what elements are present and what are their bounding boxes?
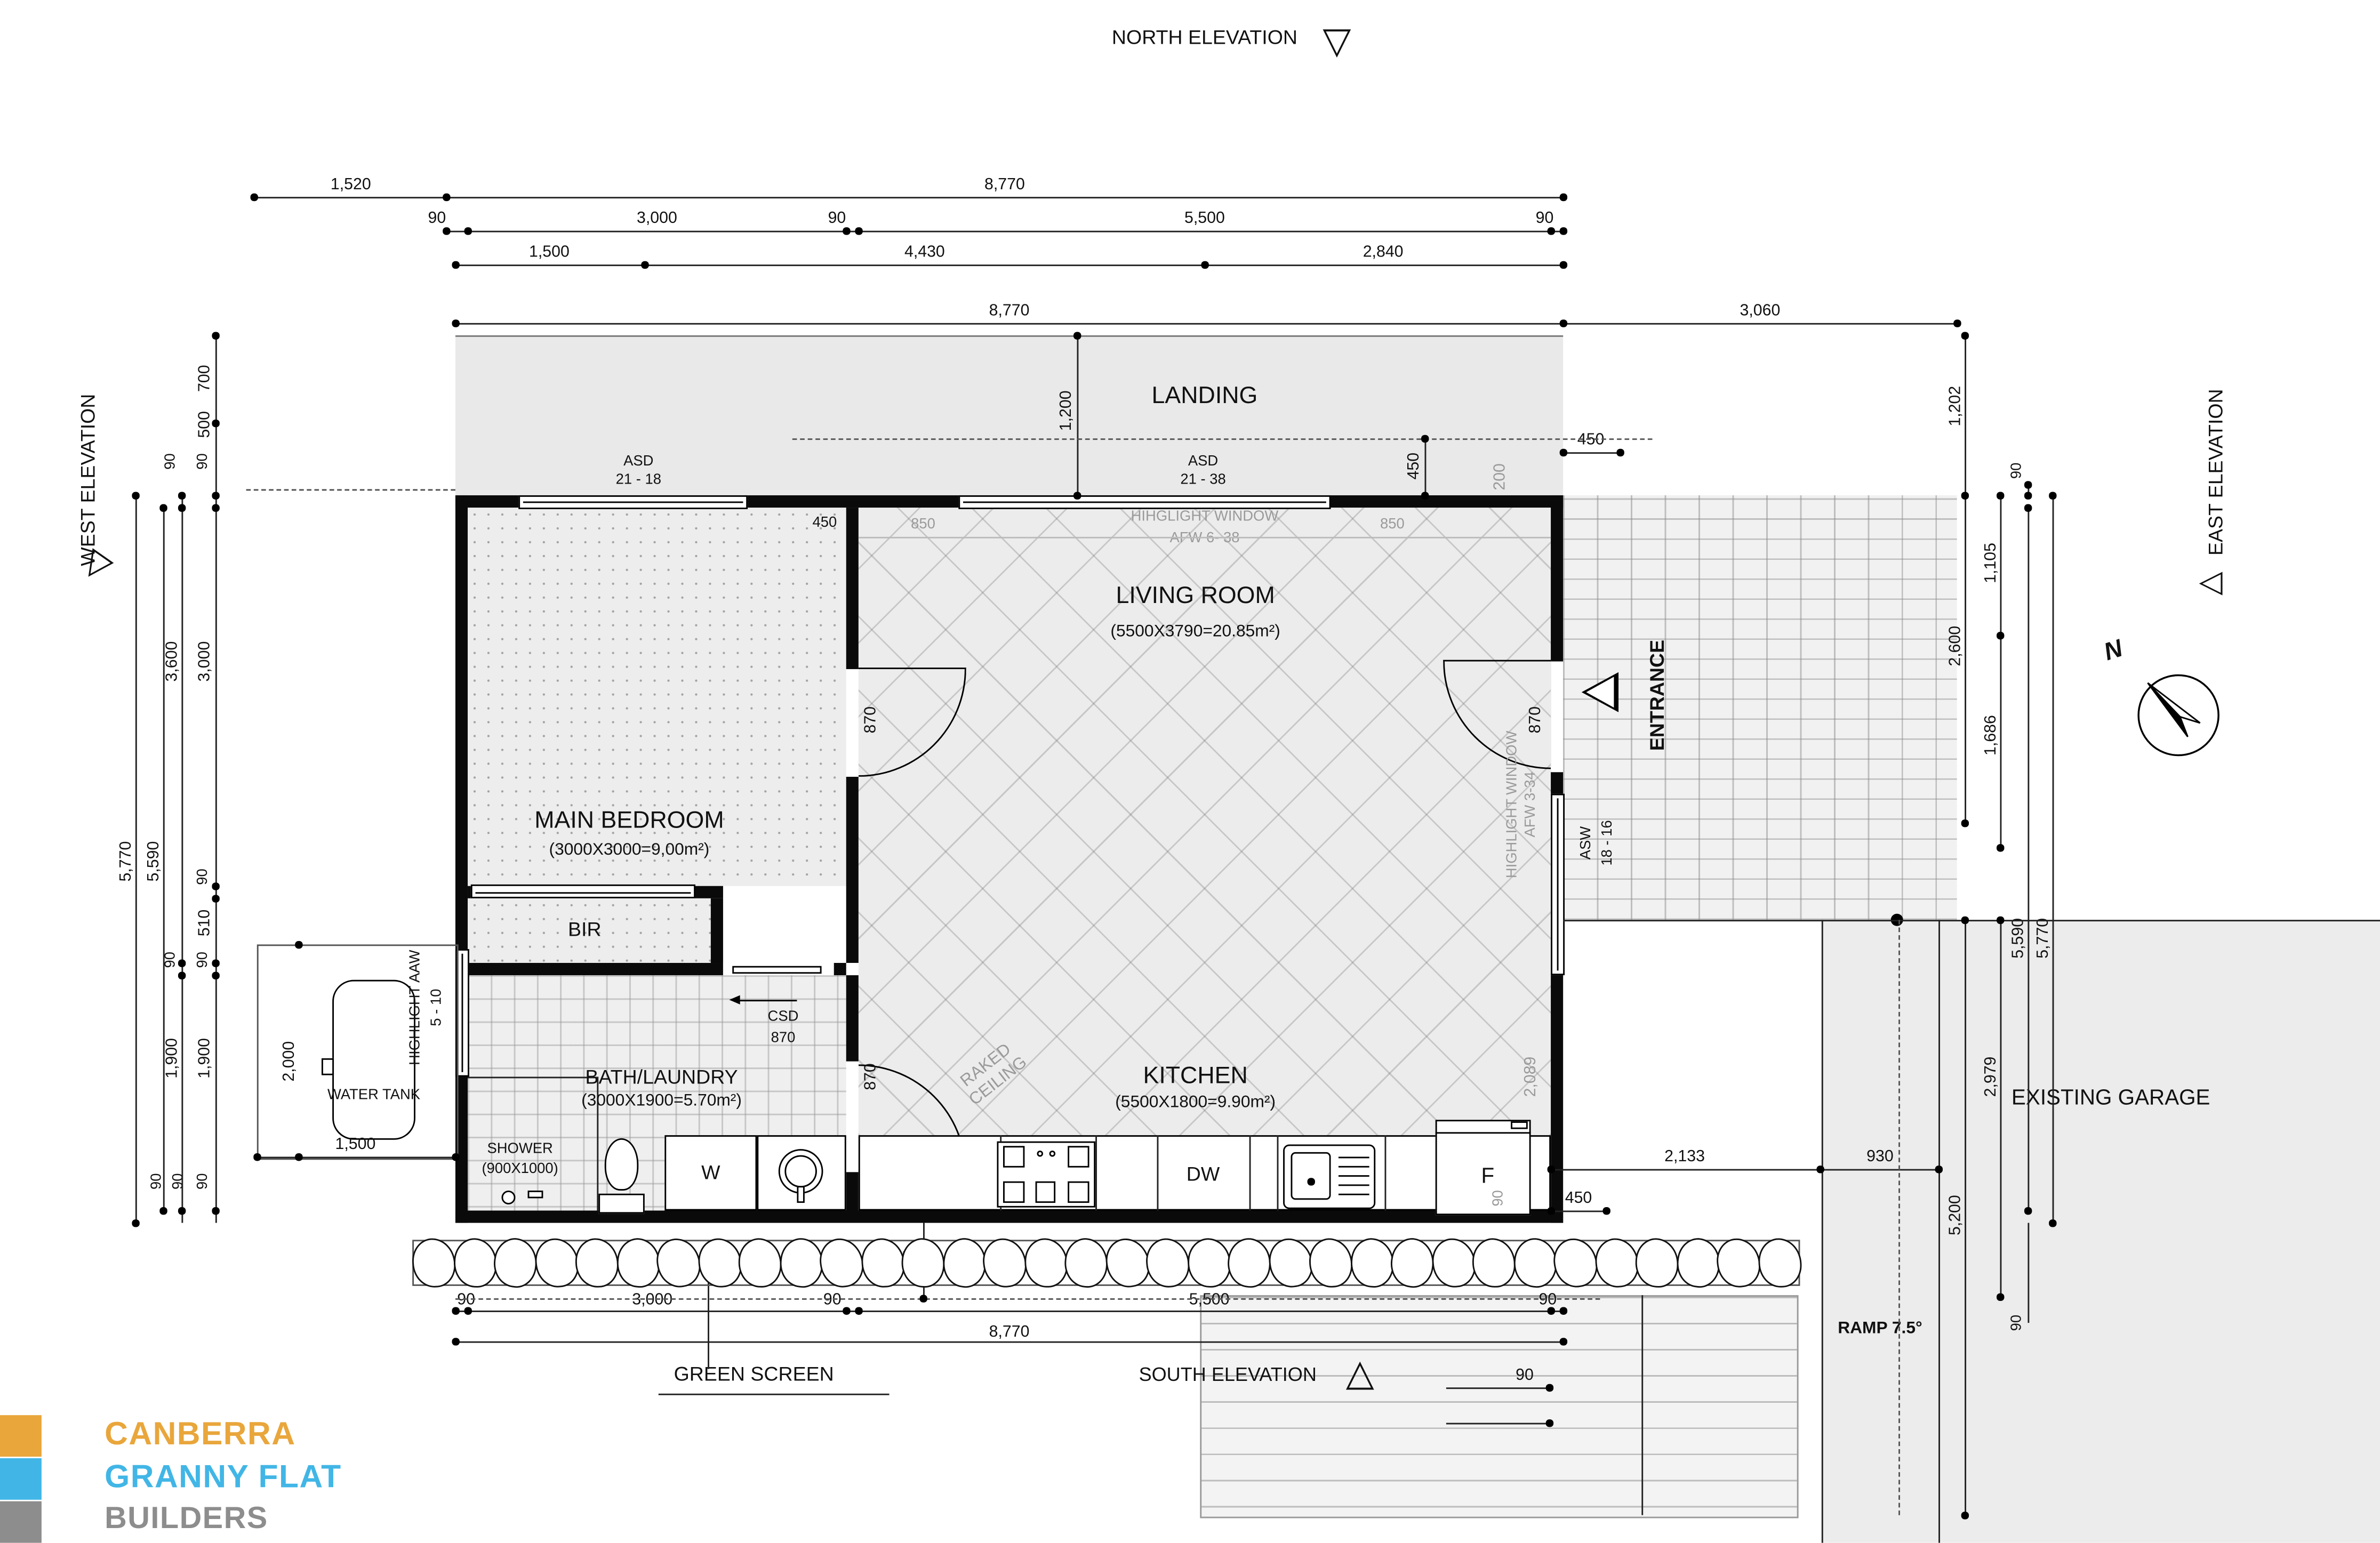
dim: 90 <box>1516 1366 1534 1385</box>
dim-line <box>659 1394 890 1395</box>
ramp-label: RAMP 7.5° <box>1838 1319 1922 1338</box>
toilet-bowl <box>605 1138 638 1191</box>
sink-plug-icon <box>1308 1178 1315 1185</box>
dim-line <box>1551 1169 1938 1171</box>
dim: 90 <box>196 869 213 885</box>
dim: 1,105 <box>1982 543 2000 583</box>
dim-dot <box>1560 194 1567 200</box>
dim-line <box>859 537 1551 539</box>
entry-door-opening <box>1551 662 1563 773</box>
dim-line <box>135 495 137 1223</box>
dim-dot <box>1961 492 1968 499</box>
asd1-number: 21 - 18 <box>616 473 661 490</box>
dim-dot <box>1961 332 1968 339</box>
dim-dot <box>212 960 219 967</box>
dim-dot <box>1560 319 1567 326</box>
dim: 850 <box>911 518 935 535</box>
existing-garage-label: EXISTING GARAGE <box>2012 1084 2210 1109</box>
dim: 90 <box>196 952 213 968</box>
dim-dot <box>295 941 302 948</box>
dim-line <box>1938 920 1940 1542</box>
dim: 850 <box>1380 518 1405 535</box>
dim: 1,900 <box>195 1038 214 1079</box>
dim-line <box>446 231 1564 232</box>
entrance-porch-paving <box>1563 495 1957 920</box>
fridge-handle <box>1511 1121 1528 1129</box>
east-elevation-label: EAST ELEVATION <box>2206 389 2229 556</box>
dim-dot <box>1560 227 1567 234</box>
window-asd-21-38 <box>958 495 1331 509</box>
dim-line <box>215 335 217 1223</box>
dim-dot <box>1997 917 2004 923</box>
dim-dot <box>920 1295 927 1301</box>
sink-drainer-5 <box>1339 1194 1369 1195</box>
fridge-door-line <box>1436 1132 1531 1134</box>
dim: 1,500 <box>335 1135 376 1154</box>
dim-dot <box>1560 1338 1567 1345</box>
dim: 2,000 <box>280 1041 299 1082</box>
dim-line <box>2028 508 2029 1210</box>
shower-label: SHOWER <box>487 1142 552 1159</box>
north-compass-icon <box>2123 658 2231 766</box>
dim-dot <box>1546 1419 1553 1426</box>
dim-dot <box>452 261 459 268</box>
living-room-area: (5500X3790=20.85m²) <box>1110 623 1280 642</box>
fridge-label: F <box>1481 1163 1494 1187</box>
dim-dot <box>1421 492 1428 499</box>
dim-dot <box>178 972 185 979</box>
dim: 3,060 <box>1740 301 1781 320</box>
dim: 90 <box>164 453 181 470</box>
dim-dot <box>855 1307 862 1314</box>
dim-line <box>1965 495 1966 823</box>
dim-dot <box>1560 261 1567 268</box>
window-asw-18-16 <box>1550 794 1564 975</box>
highlight-window-east-code: AFW 3-34 <box>1524 771 1541 837</box>
dim-line <box>1965 335 1966 495</box>
sink-drainer-4 <box>1339 1184 1369 1186</box>
dim-dot <box>1073 492 1080 499</box>
compass-n-label: N <box>2101 636 2127 669</box>
dim: 8,770 <box>984 175 1025 194</box>
aaw-number: 5 - 10 <box>430 989 447 1026</box>
dim: 90 <box>1492 1190 1509 1207</box>
bath-door-dim: 870 <box>862 1063 880 1090</box>
dim: 5,590 <box>2009 918 2028 959</box>
bath-laundry-label: BATH/LAUNDRY <box>585 1067 738 1090</box>
dim-line <box>1077 335 1079 495</box>
dim: 90 <box>2010 463 2027 479</box>
dim: 2,089 <box>1521 1057 1540 1097</box>
dim-dot <box>1546 1384 1553 1391</box>
sink-drainer-2 <box>1339 1166 1369 1168</box>
bir-sliding-doors <box>471 885 695 898</box>
dim-line <box>1822 920 1823 1542</box>
water-tank-outlet <box>322 1058 334 1075</box>
dim-dot <box>1816 1166 1823 1172</box>
dim-dot <box>2024 1207 2031 1214</box>
sink-bowl <box>1291 1152 1331 1200</box>
landing-label: LANDING <box>1152 383 1258 411</box>
shower-mixer-icon <box>528 1191 543 1198</box>
dim-line <box>1446 1387 1549 1389</box>
dim-line <box>1563 452 1620 454</box>
bath-north-wall-stub <box>834 963 846 975</box>
asw-number: 18 - 16 <box>1601 820 1618 865</box>
bench-div-5 <box>1277 1135 1279 1210</box>
dim: 90 <box>428 209 446 228</box>
garage-area <box>1938 920 2380 1542</box>
dashed-line <box>1898 920 1900 1515</box>
dim-dot <box>178 1207 185 1214</box>
dim-line <box>1563 920 2380 921</box>
dim-line <box>2053 495 2054 1223</box>
dim: 1,520 <box>331 175 371 194</box>
ramp-strip <box>1822 920 1938 1542</box>
asd2-number: 21 - 38 <box>1180 473 1225 490</box>
highlight-window-top-code: AFW 6- 38 <box>1169 532 1239 549</box>
dim-dot <box>1935 1166 1942 1172</box>
dim-line <box>2000 636 2002 848</box>
dim-dot <box>212 420 219 427</box>
logo-line-3: BUILDERS <box>105 1502 268 1537</box>
dim-line <box>1965 920 1966 1515</box>
dim-line <box>163 508 165 1210</box>
dim-dot <box>2049 1219 2056 1226</box>
logo-line-1: CANBERRA <box>105 1417 295 1454</box>
dim-line <box>254 197 1563 198</box>
dim: 5,590 <box>145 841 163 882</box>
dim: 450 <box>812 516 837 533</box>
burner-knob-2 <box>1049 1151 1056 1157</box>
dim: 90 <box>196 1173 213 1190</box>
dim: 3,600 <box>163 641 182 682</box>
dim-dot <box>1201 261 1208 268</box>
dim-dot <box>178 960 185 967</box>
burner-2 <box>1068 1146 1089 1167</box>
dim-dot <box>452 319 459 326</box>
bedroom-east-wall-upper <box>846 508 859 669</box>
dim: 4,430 <box>904 243 945 262</box>
dim: 90 <box>828 209 846 228</box>
shower-screen-line2 <box>468 1077 597 1079</box>
dim: 90 <box>1536 209 1554 228</box>
bench-div-3 <box>1157 1135 1159 1210</box>
dim-dot <box>855 227 862 234</box>
dim: 700 <box>195 365 214 392</box>
basin-inner <box>784 1155 817 1188</box>
dim-dot <box>1548 1307 1554 1314</box>
dim: 1,900 <box>163 1038 182 1079</box>
sink-drainer-3 <box>1339 1175 1369 1177</box>
dim: 500 <box>195 411 214 438</box>
floor-plan-canvas: NORTH ELEVATION ▽ 1,520 8,770 90 3,000 9… <box>0 0 2380 1543</box>
asw-label: ASW <box>1580 826 1597 859</box>
dim-dot <box>2024 504 2031 511</box>
dim-dot <box>212 332 219 339</box>
bir-east-wall <box>711 898 723 963</box>
dim-dot <box>1616 449 1623 456</box>
logo-square-blue <box>0 1458 42 1500</box>
dim: 5,200 <box>1946 1195 1965 1235</box>
csd-door-leaf <box>732 965 821 973</box>
dim: 90 <box>172 1173 189 1190</box>
bath-laundry-area: (3000X1900=5.70m²) <box>581 1091 742 1111</box>
dim-dot <box>452 1338 459 1345</box>
dim-line <box>1551 1210 1606 1212</box>
burner-3 <box>1003 1182 1024 1203</box>
burner-4 <box>1036 1182 1056 1203</box>
dim-dot <box>178 504 185 511</box>
dim-dot <box>1953 319 1960 326</box>
green-screen-label: GREEN SCREEN <box>674 1364 834 1387</box>
dim-line <box>2028 1223 2029 1323</box>
dim: 930 <box>1866 1147 1894 1166</box>
dim: 450 <box>1565 1189 1592 1208</box>
dim-dot <box>212 895 219 902</box>
dim: 5,500 <box>1184 209 1225 228</box>
washer-label: W <box>701 1162 720 1185</box>
bath-north-wall <box>468 963 723 975</box>
dim-dot <box>1560 1307 1567 1314</box>
dim-dot <box>132 1219 139 1226</box>
csd-dim: 870 <box>771 1032 796 1049</box>
deck-area <box>1200 1295 1798 1518</box>
dim-dot <box>159 1207 166 1214</box>
dashed-line <box>246 489 455 491</box>
shower-rose-icon <box>502 1191 516 1204</box>
window-asd-21-18 <box>518 495 748 509</box>
dim: 8,770 <box>989 1323 1030 1341</box>
dim-line <box>455 323 1957 325</box>
dim-dot <box>1602 1207 1609 1214</box>
dim-dot <box>132 492 139 499</box>
dim-dot <box>2024 492 2031 499</box>
dim-dot <box>159 504 166 511</box>
dishwasher-label: DW <box>1187 1164 1220 1187</box>
dim: 450 <box>1405 453 1423 480</box>
dim-dot <box>1073 332 1080 339</box>
dim: 5,770 <box>2034 918 2053 959</box>
basin-tap-icon <box>797 1186 804 1203</box>
dim-dot <box>1997 632 2004 639</box>
dim-line <box>181 495 183 1223</box>
dim-dot <box>178 492 185 499</box>
dim: 1,200 <box>1057 390 1076 431</box>
dim-dot <box>443 194 450 200</box>
dim: 2,133 <box>1664 1147 1705 1166</box>
north-elevation-label: NORTH ELEVATION <box>1112 27 1297 50</box>
csd-arrow-head <box>729 995 740 1004</box>
dim-dot <box>1997 1293 2004 1300</box>
dim-dot <box>1961 917 1968 923</box>
dim-dot <box>1997 492 2004 499</box>
dim-dot <box>1560 449 1567 456</box>
bench-div-6 <box>1385 1135 1387 1210</box>
entrance-label: ENTRANCE <box>1647 640 1670 751</box>
dim-dot <box>2024 481 2031 488</box>
dim-dot <box>1997 844 2004 851</box>
main-bedroom-area: (3000X3000=9,00m²) <box>549 841 710 860</box>
burner-knob-1 <box>1037 1151 1043 1157</box>
logo-square-gray <box>0 1501 42 1543</box>
dim: 1,686 <box>1982 715 2000 756</box>
dim-line <box>455 264 1563 266</box>
logo-square-orange <box>0 1415 42 1457</box>
east-elevation-triangle-icon: ◁ <box>2199 562 2223 600</box>
dim: 1,202 <box>1946 386 1965 427</box>
burner-5 <box>1068 1182 1089 1203</box>
dim-dot <box>843 1307 850 1314</box>
asd1-label: ASD <box>623 455 653 472</box>
living-room-label: LIVING ROOM <box>1116 583 1275 610</box>
dim-dot <box>1548 227 1554 234</box>
dim-dot <box>1961 819 1968 826</box>
dim-dot <box>464 1307 471 1314</box>
dim-line <box>455 1341 1563 1343</box>
dim-dot <box>212 504 219 511</box>
csd-arrow-line <box>735 1000 797 1001</box>
entry-door-dim: 870 <box>1526 706 1545 734</box>
asd2-label: ASD <box>1188 455 1218 472</box>
burner-1 <box>1003 1146 1024 1167</box>
dim-dot <box>212 492 219 499</box>
dim-dot <box>641 261 648 268</box>
north-elevation-triangle-icon: ▽ <box>1323 19 1351 64</box>
logo-line-2: GRANNY FLAT <box>105 1460 341 1497</box>
dim: 8,770 <box>989 301 1030 320</box>
sink-drainer-1 <box>1339 1157 1369 1159</box>
south-elevation-label: SOUTH ELEVATION <box>1139 1364 1317 1386</box>
shower-size: (900X1000) <box>482 1162 558 1179</box>
dim-line <box>1641 1295 1643 1515</box>
bedroom-door-dim: 870 <box>862 706 880 734</box>
water-tank <box>332 980 415 1140</box>
dim-dot <box>464 227 471 234</box>
csd-label: CSD <box>768 1010 799 1027</box>
dim-dot <box>212 972 219 979</box>
bath-east-wall-lower <box>846 1172 859 1210</box>
south-elevation-triangle-icon: △ <box>1346 1351 1374 1396</box>
dim: 90 <box>196 453 213 470</box>
water-tank-label: WATER TANK <box>323 1088 424 1105</box>
dim-dot <box>251 194 258 200</box>
dim-dot <box>452 1307 459 1314</box>
dim-dot <box>443 227 450 234</box>
dim-dot <box>212 1207 219 1214</box>
kitchen-area: (5500X1800=9.90m²) <box>1115 1093 1276 1112</box>
aaw-label: HIGHLIGHT AAW <box>408 950 426 1065</box>
dim: 3,000 <box>195 641 214 682</box>
dim: 2,979 <box>1982 1057 2000 1097</box>
toilet-cistern <box>598 1194 645 1214</box>
dim-line <box>455 1311 1563 1312</box>
dim-line <box>257 1157 455 1159</box>
dim-dot <box>1421 435 1428 442</box>
dashed-line <box>455 1298 1600 1300</box>
bench-div-2 <box>1095 1135 1097 1210</box>
dim-dot <box>1961 1512 1968 1518</box>
dim: 5,770 <box>117 841 135 882</box>
dim-line <box>1425 438 1427 495</box>
dim-dot <box>452 1153 459 1160</box>
dim: 1,500 <box>529 243 570 262</box>
dim: 2,840 <box>1363 243 1404 262</box>
highlight-window-east-label: HIGHLIGHT WINDOW <box>1505 731 1522 879</box>
dim-line <box>2000 920 2002 1297</box>
dim-dot <box>843 227 850 234</box>
dim: 3,000 <box>637 209 677 228</box>
dim-dot <box>295 1153 302 1160</box>
dim-dot <box>212 882 219 889</box>
dim-dot <box>1548 1207 1554 1214</box>
dim: 90 <box>2010 1315 2027 1331</box>
dim-dot <box>2049 492 2056 499</box>
dashed-line <box>792 438 1653 440</box>
entrance-arrow-icon <box>1582 672 1618 712</box>
dim: 510 <box>195 910 214 937</box>
bench-div-4 <box>1249 1135 1251 1210</box>
highlight-window-top-label: HIHGLIGHT WINDOW <box>1131 510 1279 527</box>
dim: 2,600 <box>1946 626 1965 666</box>
dim: 200 <box>1490 463 1509 491</box>
bath-east-wall-upper <box>846 975 859 1062</box>
kitchen-label: KITCHEN <box>1143 1063 1247 1090</box>
bedroom-east-wall-lower <box>846 777 859 963</box>
dim-line <box>1446 1423 1549 1425</box>
bir-label: BIR <box>568 919 602 942</box>
main-bedroom-label: MAIN BEDROOM <box>534 808 724 835</box>
dim-dot <box>253 1153 260 1160</box>
dim-dot <box>1548 1166 1554 1172</box>
dim-line <box>2000 495 2002 636</box>
